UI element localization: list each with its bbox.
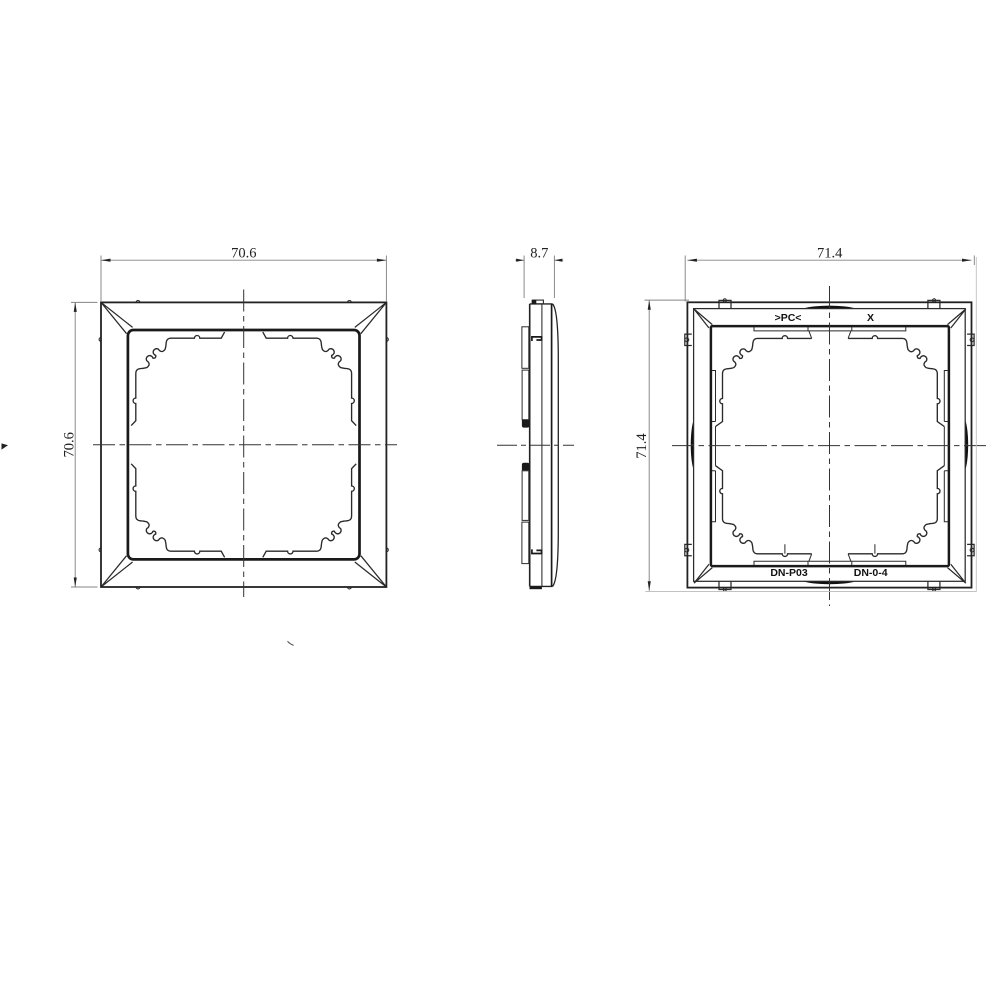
svg-text:>PC<: >PC<	[775, 312, 802, 324]
svg-text:X: X	[867, 312, 874, 324]
svg-text:71.4: 71.4	[817, 245, 843, 261]
svg-text:DN-0-4: DN-0-4	[854, 567, 888, 579]
svg-text:70.6: 70.6	[231, 245, 256, 261]
svg-text:71.4: 71.4	[634, 433, 650, 459]
svg-text:8.7: 8.7	[530, 245, 548, 261]
svg-text:DN-P03: DN-P03	[770, 567, 808, 579]
svg-text:70.6: 70.6	[61, 432, 77, 457]
